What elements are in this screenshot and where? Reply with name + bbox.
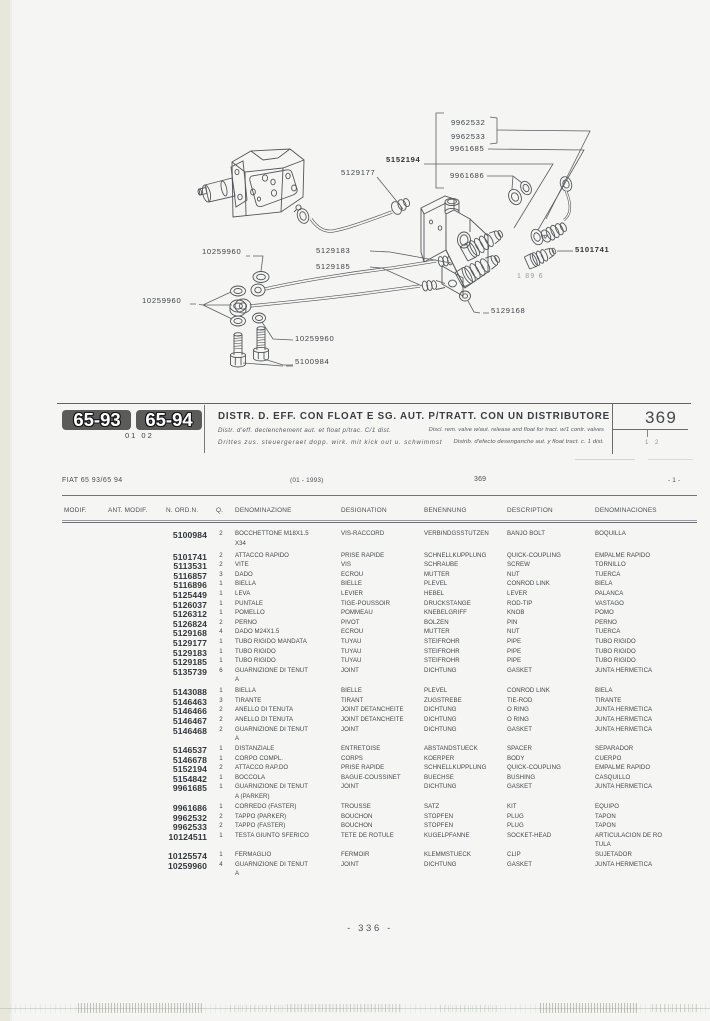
- svg-text:9962533: 9962533: [451, 132, 485, 141]
- svg-text:5101741: 5101741: [575, 245, 610, 254]
- svg-text:5152194: 5152194: [386, 155, 421, 164]
- svg-text:1 89 6: 1 89 6: [517, 273, 544, 280]
- svg-text:9962532: 9962532: [451, 118, 485, 127]
- svg-text:9961686: 9961686: [450, 171, 484, 180]
- svg-text:5129177: 5129177: [341, 168, 375, 177]
- svg-text:5129185: 5129185: [316, 262, 350, 271]
- svg-text:5100984: 5100984: [295, 357, 329, 366]
- svg-text:5129168: 5129168: [491, 306, 525, 315]
- svg-text:10259960: 10259960: [202, 247, 241, 256]
- svg-text:5129183: 5129183: [316, 246, 350, 255]
- svg-text:10259960: 10259960: [295, 334, 334, 343]
- svg-text:10259960: 10259960: [142, 296, 181, 305]
- svg-text:9961685: 9961685: [450, 144, 484, 153]
